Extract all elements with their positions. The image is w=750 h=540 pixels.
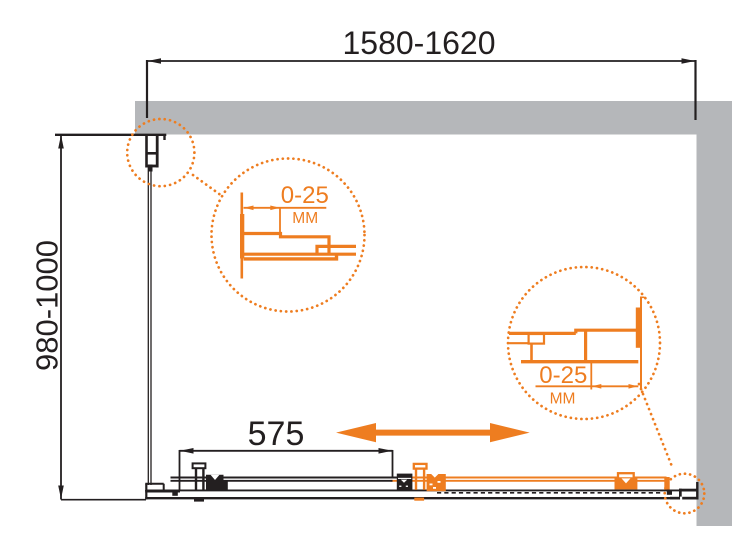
svg-text:0-25: 0-25 xyxy=(539,362,587,389)
svg-text:575: 575 xyxy=(248,415,305,453)
svg-text:MM: MM xyxy=(550,391,576,408)
svg-text:0-25: 0-25 xyxy=(281,182,329,209)
svg-text:980-1000: 980-1000 xyxy=(30,240,65,371)
svg-text:1580-1620: 1580-1620 xyxy=(342,25,495,61)
svg-text:MM: MM xyxy=(292,210,318,227)
